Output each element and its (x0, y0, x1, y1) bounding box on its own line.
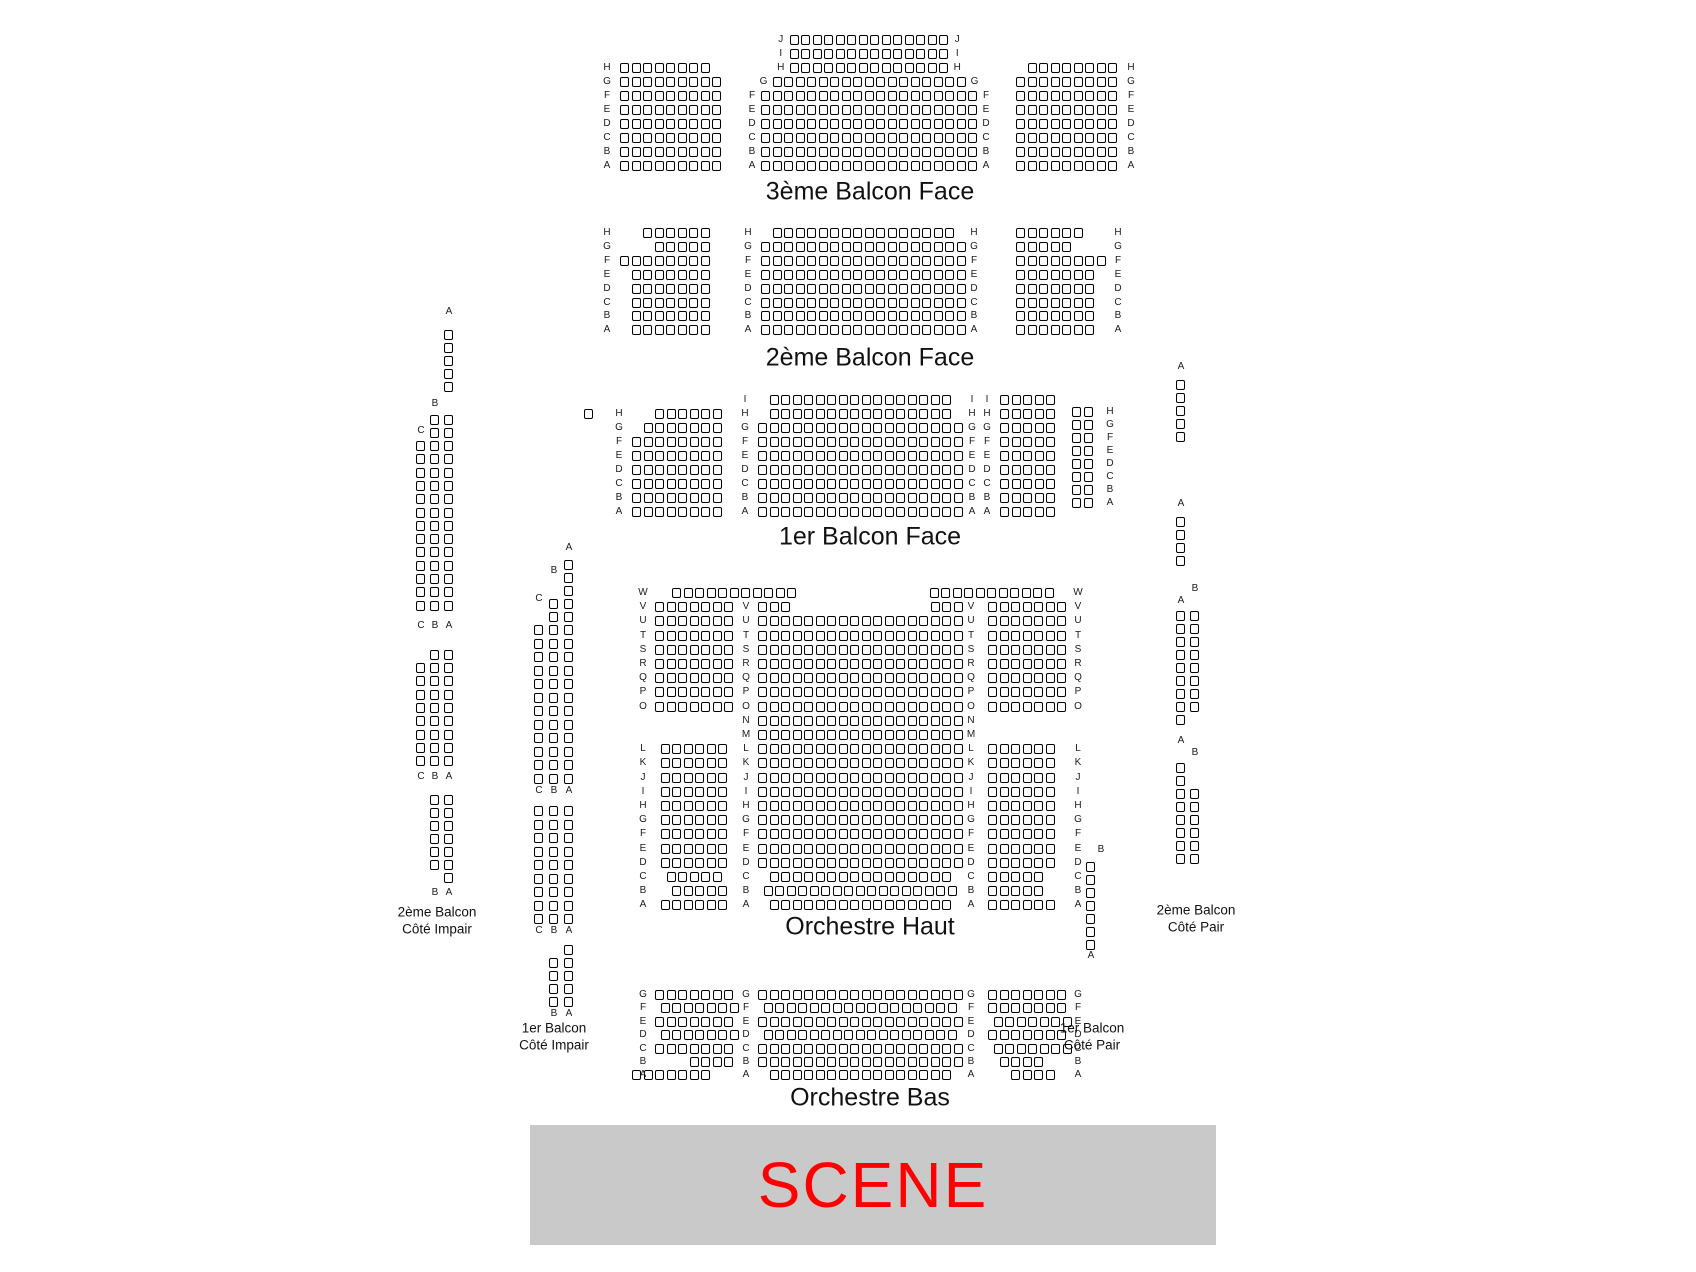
seat[interactable] (954, 479, 963, 489)
seat[interactable] (816, 1044, 825, 1054)
seat[interactable] (896, 990, 905, 1000)
seat[interactable] (655, 479, 664, 489)
seat[interactable] (781, 673, 790, 683)
seat[interactable] (850, 437, 859, 447)
seat[interactable] (684, 815, 693, 825)
seat[interactable] (804, 702, 813, 712)
seat[interactable] (922, 325, 931, 335)
seat[interactable] (684, 1003, 693, 1013)
seat[interactable] (712, 91, 721, 101)
seat[interactable] (1085, 270, 1094, 280)
seat[interactable] (885, 645, 894, 655)
seat[interactable] (1085, 63, 1094, 73)
seat[interactable] (1176, 556, 1185, 566)
seat[interactable] (816, 858, 825, 868)
seat[interactable] (666, 63, 675, 73)
seat[interactable] (934, 256, 943, 266)
seat[interactable] (444, 663, 453, 673)
seat[interactable] (879, 886, 888, 896)
seat[interactable] (988, 1003, 997, 1013)
seat[interactable] (549, 997, 558, 1007)
seat[interactable] (931, 815, 940, 825)
seat[interactable] (988, 815, 997, 825)
seat[interactable] (781, 451, 790, 461)
seat[interactable] (827, 493, 836, 503)
seat[interactable] (793, 744, 802, 754)
seat[interactable] (919, 900, 928, 910)
seat[interactable] (770, 437, 779, 447)
seat[interactable] (701, 616, 710, 626)
seat[interactable] (896, 1017, 905, 1027)
seat[interactable] (954, 645, 963, 655)
seat[interactable] (690, 451, 699, 461)
seat[interactable] (1046, 631, 1055, 641)
seat[interactable] (988, 645, 997, 655)
seat[interactable] (690, 423, 699, 433)
seat[interactable] (784, 256, 793, 266)
seat[interactable] (953, 588, 962, 598)
seat[interactable] (830, 325, 839, 335)
seat[interactable] (416, 676, 425, 686)
seat[interactable] (718, 801, 727, 811)
seat[interactable] (939, 49, 948, 59)
seat[interactable] (666, 284, 675, 294)
seat[interactable] (701, 493, 710, 503)
seat[interactable] (661, 829, 670, 839)
seat[interactable] (1016, 119, 1025, 129)
seat[interactable] (988, 602, 997, 612)
seat[interactable] (1176, 517, 1185, 527)
seat[interactable] (793, 716, 802, 726)
seat[interactable] (847, 35, 856, 45)
seat[interactable] (758, 507, 767, 517)
seat[interactable] (430, 561, 439, 571)
seat[interactable] (919, 465, 928, 475)
seat[interactable] (939, 63, 948, 73)
seat[interactable] (678, 119, 687, 129)
seat[interactable] (942, 815, 951, 825)
seat[interactable] (850, 744, 859, 754)
seat[interactable] (1011, 1070, 1020, 1080)
seat[interactable] (945, 105, 954, 115)
seat[interactable] (908, 872, 917, 882)
seat[interactable] (713, 479, 722, 489)
seat[interactable] (1051, 77, 1060, 87)
seat[interactable] (678, 161, 687, 171)
seat[interactable] (643, 147, 652, 157)
seat[interactable] (839, 900, 848, 910)
seat[interactable] (793, 645, 802, 655)
seat[interactable] (444, 873, 453, 883)
seat[interactable] (712, 105, 721, 115)
seat[interactable] (896, 801, 905, 811)
seat[interactable] (862, 395, 871, 405)
seat[interactable] (1000, 395, 1009, 405)
seat[interactable] (667, 631, 676, 641)
seat[interactable] (804, 990, 813, 1000)
seat[interactable] (444, 574, 453, 584)
seat[interactable] (804, 616, 813, 626)
seat[interactable] (885, 716, 894, 726)
seat[interactable] (954, 673, 963, 683)
seat[interactable] (564, 860, 573, 870)
seat[interactable] (1051, 256, 1060, 266)
seat[interactable] (666, 133, 675, 143)
seat[interactable] (564, 958, 573, 968)
seat[interactable] (1057, 631, 1066, 641)
seat[interactable] (1084, 498, 1093, 508)
seat[interactable] (902, 1030, 911, 1040)
seat[interactable] (945, 256, 954, 266)
seat[interactable] (873, 507, 882, 517)
seat[interactable] (784, 311, 793, 321)
seat[interactable] (764, 1003, 773, 1013)
seat[interactable] (942, 990, 951, 1000)
seat[interactable] (655, 645, 664, 655)
seat[interactable] (816, 687, 825, 697)
seat[interactable] (988, 702, 997, 712)
seat[interactable] (804, 507, 813, 517)
seat[interactable] (896, 773, 905, 783)
seat[interactable] (896, 829, 905, 839)
seat[interactable] (549, 847, 558, 857)
seat[interactable] (1023, 659, 1032, 669)
seat[interactable] (684, 858, 693, 868)
seat[interactable] (816, 423, 825, 433)
seat[interactable] (1000, 479, 1009, 489)
seat[interactable] (919, 829, 928, 839)
seat[interactable] (919, 395, 928, 405)
seat[interactable] (632, 256, 641, 266)
seat[interactable] (870, 35, 879, 45)
seat[interactable] (862, 773, 871, 783)
seat[interactable] (899, 133, 908, 143)
seat[interactable] (1011, 829, 1020, 839)
seat[interactable] (865, 242, 874, 252)
seat[interactable] (1190, 650, 1199, 660)
seat[interactable] (830, 270, 839, 280)
seat[interactable] (1072, 472, 1081, 482)
seat[interactable] (655, 702, 664, 712)
seat[interactable] (1000, 829, 1009, 839)
seat[interactable] (1046, 687, 1055, 697)
seat[interactable] (1000, 702, 1009, 712)
seat[interactable] (1046, 673, 1055, 683)
seat[interactable] (862, 409, 871, 419)
seat[interactable] (655, 409, 664, 419)
seat[interactable] (655, 673, 664, 683)
seat[interactable] (701, 659, 710, 669)
seat[interactable] (773, 228, 782, 238)
seat[interactable] (689, 105, 698, 115)
seat[interactable] (1022, 588, 1031, 598)
seat[interactable] (936, 886, 945, 896)
seat[interactable] (773, 256, 782, 266)
seat[interactable] (862, 465, 871, 475)
seat[interactable] (942, 423, 951, 433)
seat[interactable] (942, 1017, 951, 1027)
seat[interactable] (847, 63, 856, 73)
seat[interactable] (678, 465, 687, 475)
seat[interactable] (753, 588, 762, 598)
seat[interactable] (1034, 1057, 1043, 1067)
seat[interactable] (643, 77, 652, 87)
seat[interactable] (784, 119, 793, 129)
seat[interactable] (781, 645, 790, 655)
seat[interactable] (416, 663, 425, 673)
seat[interactable] (888, 77, 897, 87)
seat[interactable] (945, 119, 954, 129)
seat[interactable] (957, 119, 966, 129)
seat[interactable] (942, 829, 951, 839)
seat[interactable] (781, 1044, 790, 1054)
seat[interactable] (1000, 758, 1009, 768)
seat[interactable] (1074, 91, 1083, 101)
seat[interactable] (830, 119, 839, 129)
seat[interactable] (678, 451, 687, 461)
seat[interactable] (643, 284, 652, 294)
seat[interactable] (1016, 298, 1025, 308)
seat[interactable] (934, 147, 943, 157)
seat[interactable] (1000, 1030, 1009, 1040)
seat[interactable] (655, 659, 664, 669)
seat[interactable] (896, 465, 905, 475)
seat[interactable] (827, 1017, 836, 1027)
seat[interactable] (885, 801, 894, 811)
seat[interactable] (793, 829, 802, 839)
seat[interactable] (862, 844, 871, 854)
seat[interactable] (444, 795, 453, 805)
seat[interactable] (444, 676, 453, 686)
seat[interactable] (1010, 588, 1019, 598)
seat[interactable] (1000, 990, 1009, 1000)
seat[interactable] (1034, 773, 1043, 783)
seat[interactable] (1062, 298, 1071, 308)
seat[interactable] (954, 1057, 963, 1067)
seat[interactable] (908, 858, 917, 868)
seat[interactable] (842, 91, 851, 101)
seat[interactable] (968, 133, 977, 143)
seat[interactable] (1046, 659, 1055, 669)
seat[interactable] (678, 91, 687, 101)
seat[interactable] (549, 652, 558, 662)
seat[interactable] (1085, 284, 1094, 294)
seat[interactable] (701, 1070, 710, 1080)
seat[interactable] (695, 773, 704, 783)
seat[interactable] (1039, 105, 1048, 115)
seat[interactable] (916, 35, 925, 45)
seat[interactable] (1000, 815, 1009, 825)
seat[interactable] (1011, 872, 1020, 882)
seat[interactable] (862, 507, 871, 517)
seat[interactable] (1074, 119, 1083, 129)
seat[interactable] (796, 325, 805, 335)
seat[interactable] (862, 659, 871, 669)
seat[interactable] (919, 645, 928, 655)
seat[interactable] (1085, 77, 1094, 87)
seat[interactable] (862, 716, 871, 726)
seat[interactable] (666, 242, 675, 252)
seat[interactable] (1000, 844, 1009, 854)
seat[interactable] (931, 616, 940, 626)
seat[interactable] (1034, 659, 1043, 669)
seat[interactable] (1176, 715, 1185, 725)
seat[interactable] (847, 49, 856, 59)
seat[interactable] (839, 1044, 848, 1054)
seat[interactable] (1011, 687, 1020, 697)
seat[interactable] (781, 716, 790, 726)
seat[interactable] (862, 787, 871, 797)
seat[interactable] (911, 133, 920, 143)
seat[interactable] (888, 119, 897, 129)
seat[interactable] (444, 601, 453, 611)
seat[interactable] (813, 63, 822, 73)
seat[interactable] (712, 147, 721, 157)
seat[interactable] (896, 409, 905, 419)
seat[interactable] (1023, 493, 1032, 503)
seat[interactable] (444, 756, 453, 766)
seat[interactable] (707, 801, 716, 811)
seat[interactable] (724, 602, 733, 612)
seat[interactable] (430, 574, 439, 584)
seat[interactable] (1046, 1030, 1055, 1040)
seat[interactable] (784, 77, 793, 87)
seat[interactable] (655, 465, 664, 475)
seat[interactable] (1074, 147, 1083, 157)
seat[interactable] (534, 652, 543, 662)
seat[interactable] (564, 945, 573, 955)
seat[interactable] (644, 493, 653, 503)
seat[interactable] (804, 687, 813, 697)
seat[interactable] (712, 119, 721, 129)
seat[interactable] (672, 787, 681, 797)
seat[interactable] (816, 465, 825, 475)
seat[interactable] (781, 773, 790, 783)
seat[interactable] (945, 325, 954, 335)
seat[interactable] (701, 270, 710, 280)
seat[interactable] (564, 560, 573, 570)
seat[interactable] (798, 886, 807, 896)
seat[interactable] (707, 758, 716, 768)
seat[interactable] (885, 423, 894, 433)
seat[interactable] (430, 808, 439, 818)
seat[interactable] (807, 325, 816, 335)
seat[interactable] (549, 984, 558, 994)
seat[interactable] (430, 690, 439, 700)
seat[interactable] (922, 256, 931, 266)
seat[interactable] (416, 743, 425, 753)
seat[interactable] (1176, 611, 1185, 621)
seat[interactable] (911, 270, 920, 280)
seat[interactable] (908, 1044, 917, 1054)
seat[interactable] (862, 858, 871, 868)
seat[interactable] (666, 77, 675, 87)
seat[interactable] (712, 133, 721, 143)
seat[interactable] (1176, 841, 1185, 851)
seat[interactable] (885, 479, 894, 489)
seat[interactable] (1011, 787, 1020, 797)
seat[interactable] (908, 815, 917, 825)
seat[interactable] (819, 77, 828, 87)
seat[interactable] (1074, 325, 1083, 335)
seat[interactable] (655, 119, 664, 129)
seat[interactable] (1035, 395, 1044, 405)
seat[interactable] (801, 35, 810, 45)
seat[interactable] (1072, 420, 1081, 430)
seat[interactable] (793, 1070, 802, 1080)
seat[interactable] (678, 990, 687, 1000)
seat[interactable] (1011, 801, 1020, 811)
seat[interactable] (842, 119, 851, 129)
seat[interactable] (1034, 687, 1043, 697)
seat[interactable] (908, 423, 917, 433)
seat[interactable] (922, 119, 931, 129)
seat[interactable] (1034, 602, 1043, 612)
seat[interactable] (908, 730, 917, 740)
seat[interactable] (1028, 311, 1037, 321)
seat[interactable] (876, 311, 885, 321)
seat[interactable] (896, 423, 905, 433)
seat[interactable] (1086, 940, 1095, 950)
seat[interactable] (922, 133, 931, 143)
seat[interactable] (988, 900, 997, 910)
seat[interactable] (827, 716, 836, 726)
seat[interactable] (1051, 325, 1060, 335)
seat[interactable] (804, 787, 813, 797)
seat[interactable] (885, 395, 894, 405)
seat[interactable] (689, 133, 698, 143)
seat[interactable] (839, 395, 848, 405)
seat[interactable] (1051, 311, 1060, 321)
seat[interactable] (827, 801, 836, 811)
seat[interactable] (564, 747, 573, 757)
seat[interactable] (957, 147, 966, 157)
seat[interactable] (827, 409, 836, 419)
seat[interactable] (666, 161, 675, 171)
seat[interactable] (781, 801, 790, 811)
seat[interactable] (836, 63, 845, 73)
seat[interactable] (1016, 325, 1025, 335)
seat[interactable] (1011, 631, 1020, 641)
seat[interactable] (758, 465, 767, 475)
seat[interactable] (1046, 844, 1055, 854)
seat[interactable] (667, 990, 676, 1000)
seat[interactable] (1000, 645, 1009, 655)
seat[interactable] (1190, 815, 1199, 825)
seat[interactable] (830, 242, 839, 252)
seat[interactable] (796, 161, 805, 171)
seat[interactable] (1084, 485, 1093, 495)
seat[interactable] (430, 428, 439, 438)
seat[interactable] (793, 900, 802, 910)
seat[interactable] (908, 437, 917, 447)
seat[interactable] (672, 758, 681, 768)
seat[interactable] (931, 631, 940, 641)
seat[interactable] (781, 616, 790, 626)
seat[interactable] (919, 1017, 928, 1027)
seat[interactable] (796, 119, 805, 129)
seat[interactable] (816, 744, 825, 754)
seat[interactable] (896, 507, 905, 517)
seat[interactable] (939, 35, 948, 45)
seat[interactable] (678, 687, 687, 697)
seat[interactable] (988, 659, 997, 669)
seat[interactable] (885, 673, 894, 683)
seat[interactable] (1000, 1003, 1009, 1013)
seat[interactable] (957, 161, 966, 171)
seat[interactable] (816, 758, 825, 768)
seat[interactable] (842, 325, 851, 335)
